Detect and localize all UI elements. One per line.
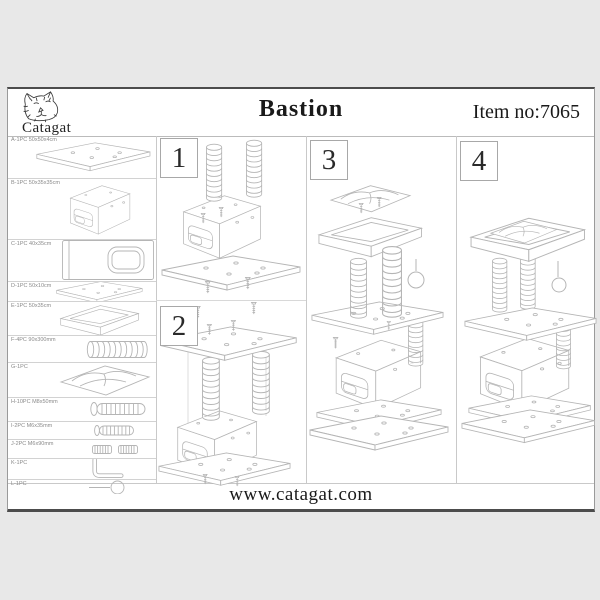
instruction-sheet-page: Catagat Bastion Item no:7065 A-1PC 50x50… xyxy=(7,87,595,512)
part-row-allen-key: K-1PC xyxy=(8,459,156,480)
part-row-bed-tray: E-1PC 50x35cm xyxy=(8,302,156,336)
part-row-panel-with-hole: C-1PC 40x35cm xyxy=(8,240,156,282)
allen-key-drawing xyxy=(8,459,156,479)
step-3-number: 3 xyxy=(310,140,348,180)
step-number-text: 3 xyxy=(322,144,337,177)
step-4-diagram xyxy=(456,145,600,483)
website-url: www.catagat.com xyxy=(8,484,594,506)
panel-with-hole-drawing xyxy=(8,240,156,281)
bed-tray-drawing xyxy=(8,302,156,335)
large-bolt-drawing xyxy=(8,398,156,421)
base-board-drawing xyxy=(8,136,156,178)
step-4-number: 4 xyxy=(460,141,498,181)
step-3-diagram xyxy=(306,139,462,483)
part-row-base-board: A-1PC 50x50x4cm xyxy=(8,136,156,179)
part-row-medium-bolt: I-2PC M6x35mm xyxy=(8,422,156,440)
part-row-middle-board: D-1PC 50x10cm xyxy=(8,282,156,302)
item-number: Item no:7065 xyxy=(473,101,580,124)
cushion-drawing xyxy=(8,363,156,397)
part-row-cushion: G-1PC xyxy=(8,363,156,398)
part-row-house-box: B-1PC 50x35x35cm xyxy=(8,179,156,240)
step-number-text: 2 xyxy=(172,310,187,343)
step-1-number: 1 xyxy=(160,138,198,178)
part-row-scratching-post: F-4PC 90x300mm xyxy=(8,336,156,363)
step-number-text: 4 xyxy=(472,145,487,178)
step-number-text: 1 xyxy=(172,142,187,175)
part-row-connector-bolts: J-2PC M6x90mm xyxy=(8,440,156,459)
medium-bolt-drawing xyxy=(8,422,156,439)
middle-board-drawing xyxy=(8,282,156,301)
parts-list: A-1PC 50x50x4cm B-1PC 50x35x35cm C-1PC 4… xyxy=(8,136,156,494)
house-box-drawing xyxy=(8,179,156,239)
part-row-large-bolt: H-10PC M8x50mm xyxy=(8,398,156,422)
connector-bolts-drawing xyxy=(8,440,156,458)
step-2-number: 2 xyxy=(160,306,198,346)
scratching-post-drawing xyxy=(8,336,156,362)
